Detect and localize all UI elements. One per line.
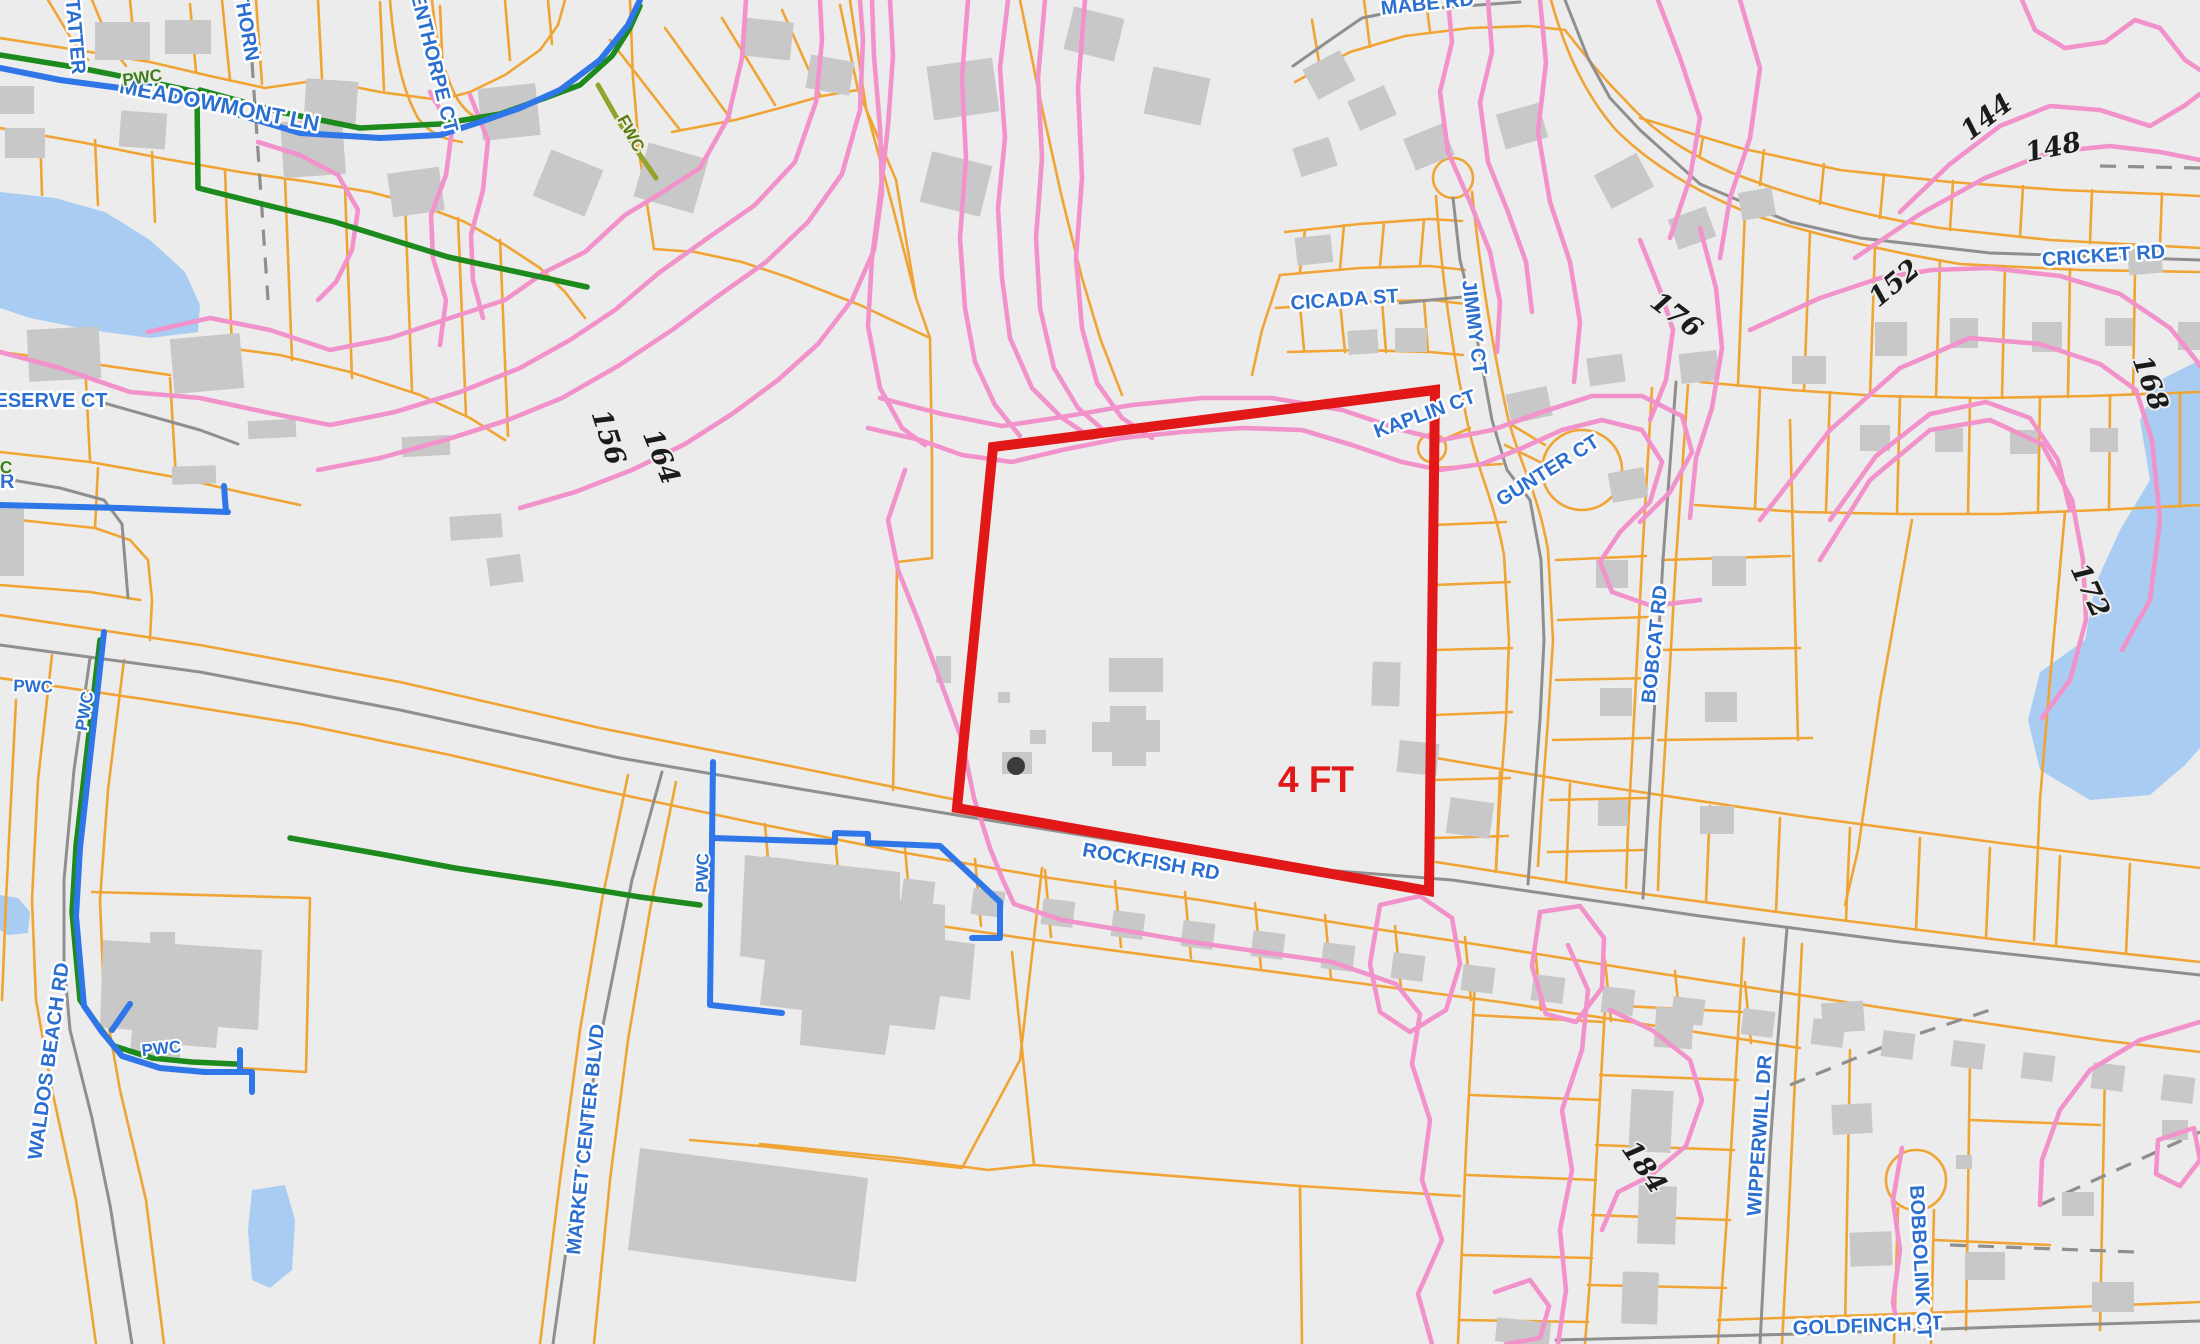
contour-label-156: 156 [585, 406, 632, 469]
contour-label-176: 176 [1644, 286, 1708, 345]
street-label-waldos-beach-rd: WALDOS BEACH RD [24, 961, 73, 1161]
utility-label-fwc: FWC [613, 112, 648, 155]
utility-label-pwc-left: PWC [13, 676, 53, 696]
sewer-line-market [290, 838, 700, 905]
street-label-reserve-ct: ESERVE CT [0, 390, 108, 412]
lake-top-left [0, 192, 200, 338]
highlighted-parcel-outline[interactable] [957, 390, 1435, 891]
highlight-layer [957, 390, 1435, 891]
factory-building [100, 932, 262, 1058]
pond-mid-left [248, 1185, 295, 1288]
water-line-left [0, 486, 228, 512]
warehouse-building [628, 1148, 868, 1282]
well-point [1007, 757, 1025, 775]
gis-map-canvas[interactable]: TATTER THORN ENTHORPE CT MEADOWMONT LN M… [0, 0, 2200, 1344]
street-label-market-center-blvd: MARKET CENTER BLVD [563, 1023, 609, 1256]
street-label-enthorpe-ct: ENTHORPE CT [406, 0, 462, 135]
utility-label-pwc-school: PWC [692, 853, 712, 893]
contour-label-164: 164 [636, 425, 686, 489]
contour-label-148: 148 [2022, 127, 2084, 169]
road-layer [0, 0, 2200, 1344]
subdivision-road [1565, 0, 2200, 260]
parcel-layer [0, 0, 2200, 1344]
building-layer [0, 6, 2200, 1344]
contour-layer [0, 0, 2200, 1344]
market-center-blvd-road [553, 772, 662, 1344]
utility-label-pwc-edge: PWC [0, 456, 13, 478]
lake-right [2028, 360, 2200, 800]
flood-depth-label: 4 FT [1278, 759, 1354, 800]
school-building [740, 855, 975, 1055]
